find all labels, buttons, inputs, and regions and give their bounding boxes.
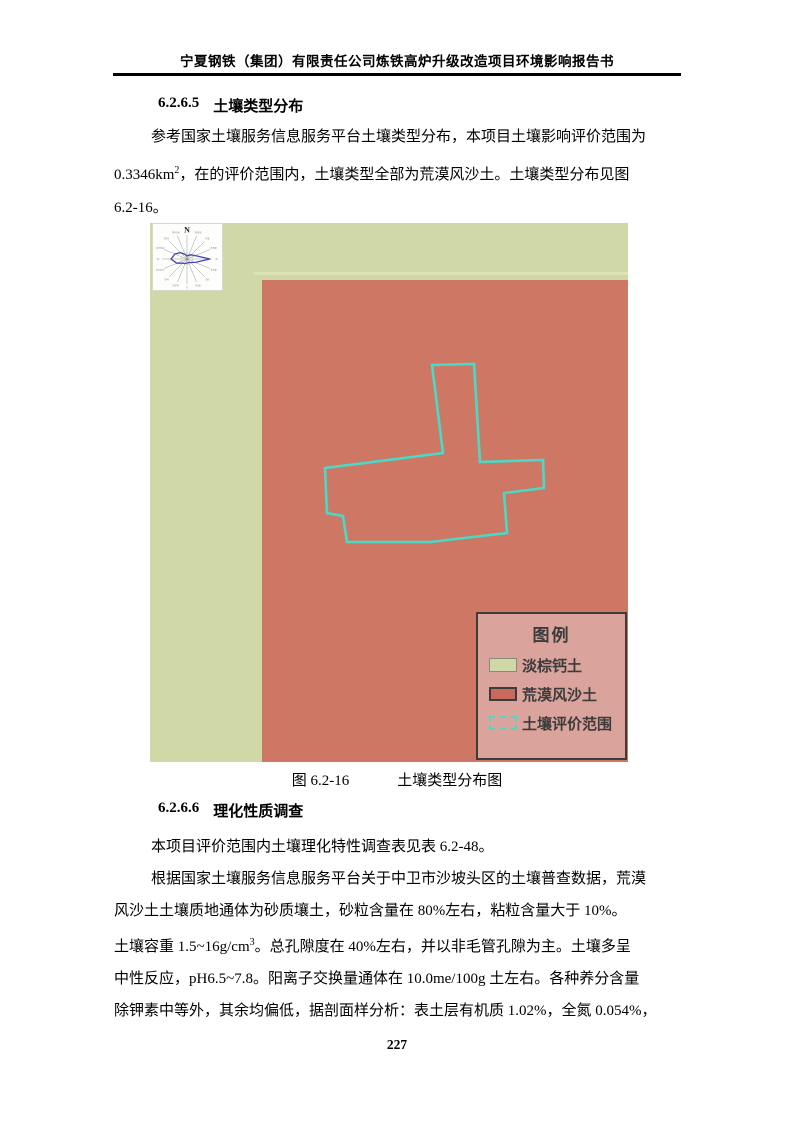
wind-rose-chart: N NNE NE ENE E ESE SE SSE S SSW SW WSW W… [153,224,222,290]
legend-item-light-brown-soil: 淡棕钙土 [489,655,625,675]
desert-sand-soil-swatch [489,687,517,701]
section-title: 理化性质调查 [213,800,303,821]
figure-caption: 图 6.2-16 土壤类型分布图 [113,769,681,790]
svg-text:ENE: ENE [211,246,218,250]
evaluation-boundary-swatch [489,716,517,730]
page-header-title: 宁夏钢铁（集团）有限责任公司炼铁高炉升级改造项目环境影响报告书 [0,50,794,70]
paragraph-line: 根据国家土壤服务信息服务平台关于中卫市沙坡头区的土壤普查数据，荒漠 [114,863,682,895]
svg-text:NW: NW [164,237,170,241]
paragraph-line: 0.3346km2，在的评价范围内，土壤类型全部为荒漠风沙土。土壤类型分布见图 [114,154,682,192]
svg-text:NE: NE [205,237,210,241]
legend-item-desert-sand-soil: 荒漠风沙土 [489,684,625,704]
page-number: 227 [0,1037,794,1053]
legend-item-evaluation-boundary: 土壤评价范围 [489,713,625,733]
north-label: N [184,226,190,235]
svg-text:NNE: NNE [195,231,202,235]
section-heading-6265: 6.2.6.5 土壤类型分布 [158,95,303,116]
svg-text:W: W [156,257,160,261]
report-page: 宁夏钢铁（集团）有限责任公司炼铁高炉升级改造项目环境影响报告书 6.2.6.5 … [0,0,794,1123]
paragraph-line: 6.2-16。 [114,192,682,225]
paragraph-line: 参考国家土壤服务信息服务平台土壤类型分布，本项目土壤影响评价范围为 [114,121,682,154]
wind-rose-polygon [171,253,210,264]
section-number: 6.2.6.5 [158,95,199,116]
legend-title: 图例 [478,621,625,646]
figure-caption-label: 图 6.2-16 [292,769,350,790]
svg-text:NNW: NNW [172,231,181,235]
paragraph-survey-intro: 本项目评价范围内土壤理化特性调查表见表 6.2-48。 [114,831,682,863]
paragraph-line: 土壤容重 1.5~16g/cm3。总孔隙度在 40%左右，并以非毛管孔隙为主。土… [114,927,682,963]
svg-text:SW: SW [164,278,170,282]
map-legend: 图例 淡棕钙土 荒漠风沙土 土壤评价范围 [476,612,627,760]
svg-text:SSW: SSW [172,284,180,288]
paragraph-line: 本项目评价范围内土壤理化特性调查表见表 6.2-48。 [114,831,682,863]
section-heading-6266: 6.2.6.6 理化性质调查 [158,800,303,821]
paragraph-soil-type: 参考国家土壤服务信息服务平台土壤类型分布，本项目土壤影响评价范围为 0.3346… [114,121,682,225]
light-brown-soil-swatch [489,658,517,672]
svg-text:WNW: WNW [156,246,166,250]
paragraph-line: 除钾素中等外，其余均偏低，据剖面样分析：表土层有机质 1.02%，全氮 0.05… [114,995,682,1027]
paragraph-line: 风沙土土壤质地通体为砂质壤土，砂粒含量在 80%左右，粘粒含量大于 10%。 [114,895,682,927]
svg-text:ESE: ESE [211,268,217,272]
svg-text:WSW: WSW [156,268,165,272]
section-title: 土壤类型分布 [213,95,303,116]
svg-text:E: E [215,257,217,261]
wind-rose-inset: N NNE NE ENE E ESE SE SSE S SSW SW WSW W… [153,224,222,290]
paragraph-soil-properties: 根据国家土壤服务信息服务平台关于中卫市沙坡头区的土壤普查数据，荒漠 风沙土土壤质… [114,863,682,1027]
header-rule [113,73,681,76]
svg-text:SSE: SSE [195,284,201,288]
svg-text:SE: SE [206,278,210,282]
soil-type-map: N NNE NE ENE E ESE SE SSE S SSW SW WSW W… [150,223,628,762]
figure-caption-title: 土壤类型分布图 [397,769,502,790]
paragraph-line: 中性反应，pH6.5~7.8。阳离子交换量通体在 10.0me/100g 土左右… [114,963,682,995]
section-number: 6.2.6.6 [158,800,199,821]
svg-text:S: S [186,286,188,290]
